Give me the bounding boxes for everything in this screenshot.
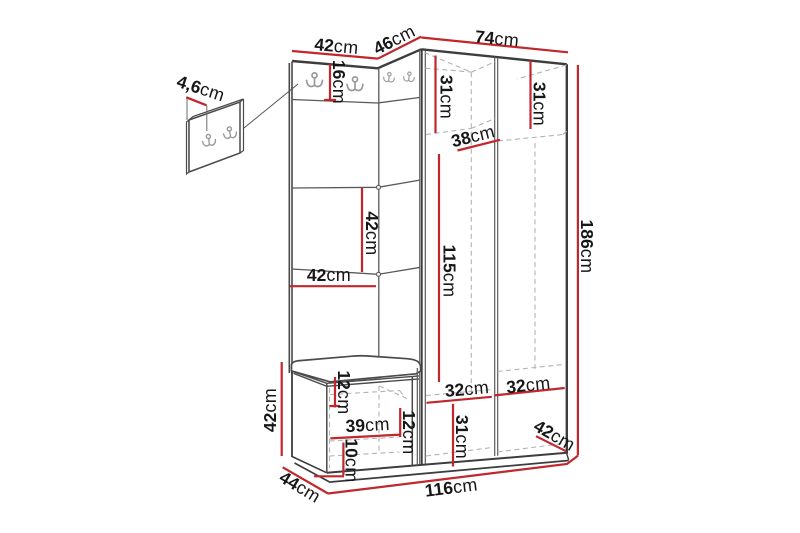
svg-text:10cm: 10cm [342,438,362,482]
svg-text:16cm: 16cm [329,60,349,104]
svg-text:31cm: 31cm [530,82,550,126]
svg-text:32cm: 32cm [444,377,490,401]
svg-text:186cm: 186cm [577,220,597,274]
svg-text:42cm: 42cm [307,265,351,285]
svg-text:39cm: 39cm [345,414,390,436]
svg-text:12cm: 12cm [399,410,419,454]
svg-text:12cm: 12cm [334,370,354,414]
svg-text:42cm: 42cm [362,211,382,255]
svg-text:31cm: 31cm [452,415,472,459]
svg-text:42cm: 42cm [260,388,280,432]
svg-text:42cm: 42cm [314,34,360,58]
svg-text:31cm: 31cm [437,75,457,119]
svg-text:115cm: 115cm [440,244,460,297]
